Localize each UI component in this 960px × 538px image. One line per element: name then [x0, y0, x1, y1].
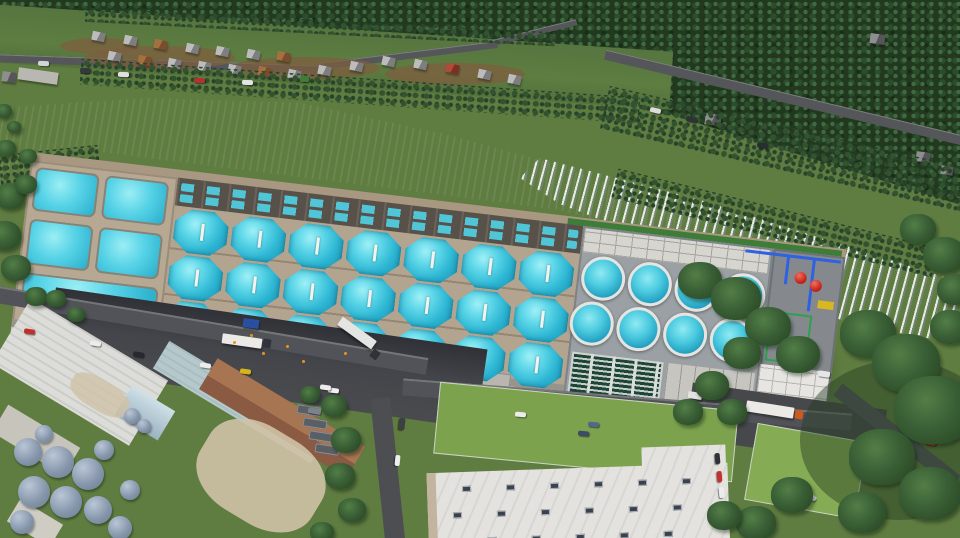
- silo: [50, 486, 82, 518]
- tree-cluster: [673, 399, 703, 425]
- roof-skylight: [453, 512, 462, 518]
- roof-skylight: [506, 484, 515, 490]
- silo: [94, 440, 114, 460]
- roof-skylight: [673, 504, 682, 510]
- roof-skylight: [550, 483, 559, 489]
- tree-cluster: [695, 371, 729, 400]
- car: [715, 453, 721, 464]
- tree-cluster: [707, 501, 741, 530]
- long-warehouse: [17, 67, 58, 84]
- tank-center-pole: [540, 311, 545, 328]
- tank-center-pole: [425, 297, 430, 314]
- yellow-equipment-pad: [817, 300, 834, 310]
- car: [80, 68, 91, 73]
- tree-cluster: [321, 395, 347, 417]
- silo: [137, 419, 151, 433]
- roof-skylight: [462, 486, 471, 492]
- car: [398, 418, 405, 431]
- roof-skylight: [497, 511, 506, 517]
- tank-center-pole: [482, 304, 487, 321]
- tree-cluster: [19, 149, 37, 164]
- silo: [10, 510, 34, 534]
- car: [38, 61, 49, 66]
- silo: [42, 446, 74, 478]
- worker-dot: [250, 334, 253, 337]
- worker-dot: [344, 352, 347, 355]
- tree-cluster: [331, 427, 361, 453]
- tank-center-pole: [373, 245, 378, 262]
- tree-cluster: [0, 221, 21, 250]
- tree-cluster: [923, 237, 960, 273]
- tree-cluster: [776, 336, 820, 373]
- tree-cluster: [325, 463, 355, 489]
- tree-cluster: [7, 121, 21, 133]
- truck-cab: [794, 409, 803, 419]
- roof-skylight: [594, 481, 603, 487]
- tree-cluster: [300, 386, 320, 403]
- silo: [84, 496, 112, 524]
- tree-cluster: [838, 492, 886, 533]
- silo: [72, 458, 104, 490]
- worker-dot: [286, 345, 289, 348]
- worker-dot: [302, 360, 305, 363]
- smolt-pool: [94, 227, 163, 280]
- tree-cluster: [0, 140, 16, 157]
- roof-skylight: [664, 531, 673, 537]
- roof-skylight: [682, 478, 691, 484]
- tank-center-pole: [257, 231, 262, 248]
- aerial-scene: hima: [0, 0, 960, 538]
- tank-center-pole: [488, 258, 493, 275]
- tank-center-pole: [310, 283, 315, 300]
- roof-skylight: [541, 509, 550, 515]
- car: [588, 422, 599, 428]
- silo: [120, 480, 140, 500]
- worker-dot: [262, 352, 265, 355]
- tree-cluster: [1, 255, 31, 281]
- worker-dot: [233, 341, 236, 344]
- tree-cluster: [0, 104, 12, 118]
- car: [394, 455, 400, 466]
- car: [300, 76, 309, 82]
- tank-center-pole: [367, 290, 372, 307]
- car: [242, 80, 253, 85]
- tree-cluster: [771, 477, 813, 513]
- tree-cluster: [67, 307, 85, 322]
- silo: [14, 438, 42, 466]
- tree-cluster: [723, 337, 761, 369]
- car: [194, 78, 205, 83]
- tank-center-pole: [200, 224, 205, 241]
- truck-cab: [262, 338, 271, 348]
- roof-skylight: [576, 534, 585, 538]
- tree-cluster: [25, 287, 47, 306]
- smolt-pool: [25, 218, 94, 271]
- tank-center-pole: [194, 270, 199, 287]
- tree-cluster: [310, 522, 334, 538]
- car: [719, 487, 725, 498]
- silo: [35, 425, 53, 443]
- silo: [18, 476, 50, 508]
- tree-cluster: [736, 506, 776, 538]
- silo: [108, 516, 132, 538]
- roof-skylight: [585, 507, 594, 513]
- roof-skylight: [638, 480, 647, 486]
- tree-cluster: [46, 290, 66, 307]
- tank-center-pole: [535, 356, 540, 373]
- tank-center-pole: [430, 251, 435, 268]
- tree-cluster: [899, 467, 960, 520]
- car: [515, 412, 526, 418]
- smolt-pool: [31, 167, 100, 218]
- house: [869, 33, 885, 45]
- tank-center-pole: [315, 238, 320, 255]
- roof-skylight: [620, 532, 629, 538]
- tank-center-pole: [252, 276, 257, 293]
- roof-skylight: [629, 506, 638, 512]
- tree-cluster: [930, 310, 960, 344]
- white-building-roof: [427, 463, 731, 538]
- tree-cluster: [937, 274, 960, 305]
- smolt-pool: [101, 175, 170, 226]
- tree-cluster: [894, 376, 960, 444]
- tree-cluster: [15, 175, 37, 194]
- tree-cluster: [717, 399, 747, 425]
- car: [717, 471, 723, 482]
- car: [118, 72, 129, 77]
- house: [1, 71, 16, 83]
- tank-center-pole: [545, 265, 550, 282]
- car: [578, 431, 589, 437]
- tree-cluster: [338, 498, 366, 522]
